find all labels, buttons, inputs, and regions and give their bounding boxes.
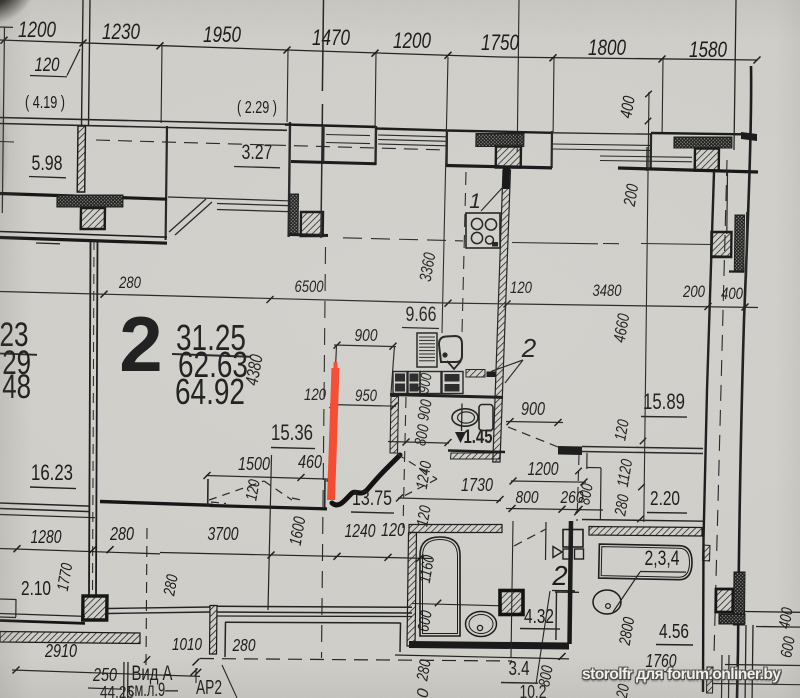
svg-text:280: 280 [611,493,633,518]
svg-text:1500: 1500 [238,454,270,475]
svg-text:120: 120 [510,278,532,297]
svg-text:9.66: 9.66 [406,303,437,326]
svg-text:900: 900 [415,372,435,395]
svg-text:( 4.19 ): ( 4.19 ) [25,92,65,112]
svg-text:900: 900 [414,398,435,422]
svg-text:3480: 3480 [593,281,622,300]
svg-text:10.2: 10.2 [520,682,547,698]
svg-text:200: 200 [620,182,643,208]
svg-text:44.25: 44.25 [100,682,134,698]
svg-text:1580: 1580 [689,37,728,62]
svg-text:15.36: 15.36 [271,420,313,445]
svg-text:280: 280 [232,635,256,655]
svg-text:400: 400 [616,94,639,119]
svg-text:400: 400 [775,606,796,630]
svg-text:120: 120 [242,478,263,502]
svg-text:6500: 6500 [295,277,324,296]
svg-text:2,3,4: 2,3,4 [645,547,680,570]
svg-text:1280: 1280 [31,527,62,547]
svg-text:2910: 2910 [44,641,77,662]
svg-text:1800: 1800 [588,35,627,60]
svg-text:.48: .48 [0,368,31,406]
svg-text:1230: 1230 [102,19,141,44]
svg-text:3.27: 3.27 [242,141,273,164]
svg-text:280: 280 [118,273,141,292]
svg-text:2: 2 [119,300,162,388]
svg-text:800: 800 [411,423,432,447]
svg-text:950: 950 [355,386,377,405]
svg-text:800: 800 [575,482,596,506]
svg-text:280: 280 [413,658,435,683]
svg-text:2: 2 [521,333,537,363]
svg-text:5.98: 5.98 [32,152,63,175]
svg-text:1470: 1470 [312,25,351,50]
svg-text:600: 600 [414,609,435,633]
svg-text:2.20: 2.20 [650,488,680,510]
svg-text:64.92: 64.92 [175,371,245,412]
svg-text:120: 120 [611,418,632,442]
svg-text:1010: 1010 [172,634,202,654]
svg-text:120: 120 [35,54,60,76]
svg-text:АР2: АР2 [196,677,222,698]
svg-text:800: 800 [516,487,539,507]
svg-text:280: 280 [109,524,134,544]
svg-text:1200: 1200 [393,28,432,53]
svg-text:( 2.29 ): ( 2.29 ) [237,97,277,117]
svg-text:900: 900 [355,325,378,345]
svg-text:900: 900 [521,399,545,419]
svg-text:600: 600 [777,635,798,659]
svg-text:4.32: 4.32 [524,606,554,628]
svg-text:1750: 1750 [481,30,520,55]
svg-text:1730: 1730 [461,475,493,496]
svg-text:1.45: 1.45 [464,426,493,448]
svg-text:2.10: 2.10 [21,578,51,600]
svg-text:120: 120 [304,385,326,404]
svg-text:1200: 1200 [528,459,559,479]
svg-text:15.89: 15.89 [643,389,685,414]
svg-text:460: 460 [298,452,322,473]
svg-text:2: 2 [551,560,567,591]
svg-text:1: 1 [469,190,481,213]
svg-text:3700: 3700 [208,524,239,544]
svg-text:1950: 1950 [203,22,242,47]
svg-text:16.23: 16.23 [31,460,73,485]
svg-text:120: 120 [381,520,405,540]
svg-text:1200: 1200 [18,17,57,42]
svg-text:400: 400 [721,284,743,303]
svg-text:4.56: 4.56 [659,621,689,643]
svg-text:200: 200 [682,282,705,301]
svg-text:280: 280 [160,573,182,598]
svg-text:1240: 1240 [345,521,376,541]
svg-text:13.75: 13.75 [352,487,392,510]
svg-text:см.л.9—: см.л.9— [128,679,178,698]
